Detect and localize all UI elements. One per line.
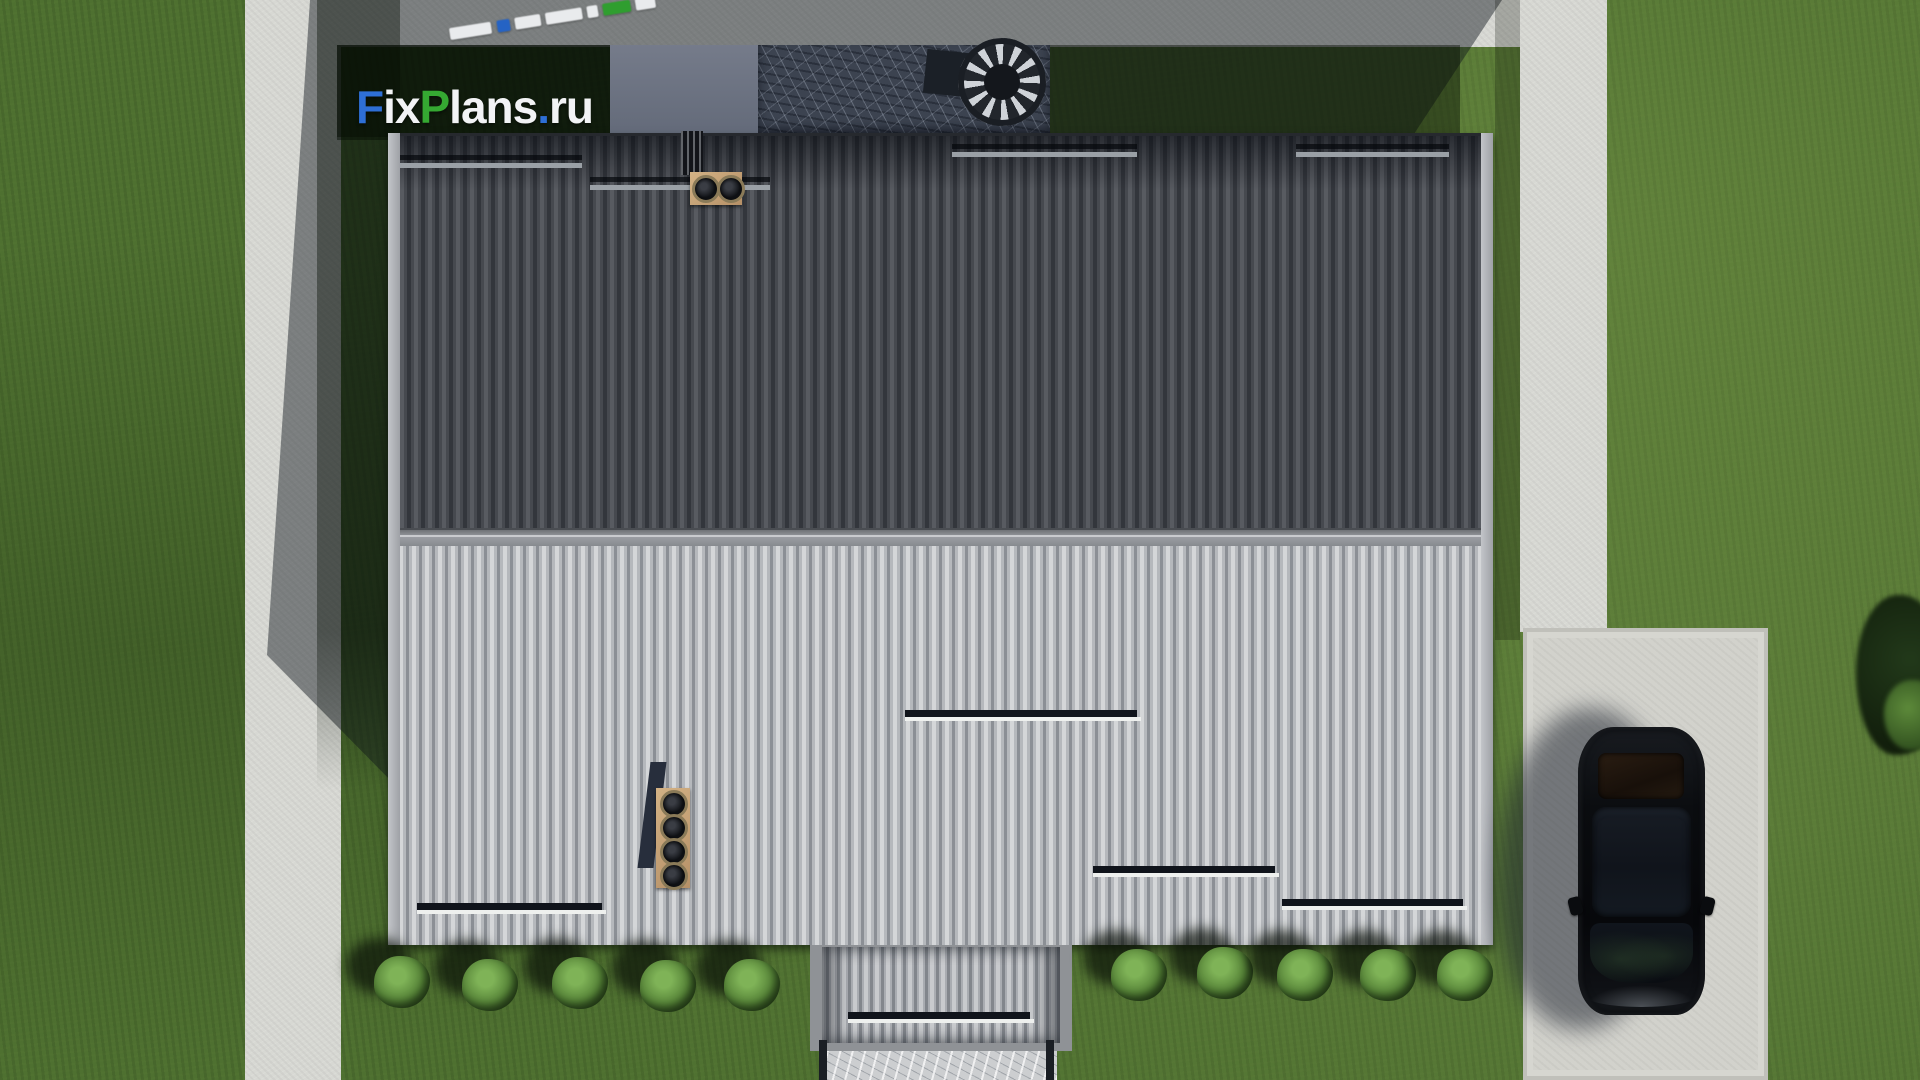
round-vent [692, 175, 720, 203]
roof-ridge-band [388, 528, 1493, 548]
watermark-letter-group: ru [549, 81, 593, 133]
spiral-staircase-core [984, 64, 1020, 100]
snow-guard-rail [905, 710, 1137, 717]
light-ribbed-roof-slope [388, 546, 1493, 945]
house-roof [388, 133, 1493, 945]
chimney-four-vents [656, 788, 690, 888]
round-vent [717, 175, 745, 203]
watermark-block-white [449, 22, 492, 40]
snow-guard-rail [848, 1012, 1030, 1019]
entrance-porch-roof [810, 945, 1072, 1051]
watermark-letter-group: ix [383, 81, 419, 133]
car-sunroof [1598, 753, 1684, 799]
chimney-two-vents [690, 172, 742, 205]
bush [724, 959, 780, 1011]
bush [1197, 947, 1253, 999]
watermark-block-white [635, 0, 657, 11]
watermark-letter-group: . [537, 81, 549, 133]
roof-fascia-right [1481, 133, 1493, 945]
car-windshield [1590, 923, 1693, 983]
snow-guard-rail [1296, 152, 1449, 157]
watermark-letter-group: F [356, 81, 383, 133]
porch-post [1046, 1040, 1054, 1080]
roof-ridge-highlight [388, 535, 1493, 537]
fixplans-watermark: FixPlans.ru [356, 80, 593, 134]
snow-guard-rail [400, 163, 582, 168]
roof-fascia-left [388, 133, 400, 945]
watermark-block-white [586, 5, 599, 19]
watermark-letter-group: lans [449, 81, 537, 133]
porch-post [819, 1040, 827, 1080]
bush [462, 959, 518, 1011]
bush [374, 956, 430, 1008]
ridge-vent-grille [681, 131, 703, 175]
watermark-block-white [514, 14, 542, 30]
dark-tile-roof-slope [388, 133, 1493, 531]
watermark-block-white [545, 7, 583, 25]
bush [1111, 949, 1167, 1001]
watermark-letter-group: P [419, 81, 449, 133]
bush [1437, 949, 1493, 1001]
black-sedan [1578, 727, 1705, 1015]
snow-guard-rail [1282, 899, 1463, 906]
bush [1277, 949, 1333, 1001]
aerial-render-scene: FixPlans.ru [0, 0, 1920, 1080]
right-concrete-path [1520, 0, 1607, 632]
snow-guard-rail [952, 152, 1137, 157]
bush [1360, 949, 1416, 1001]
entrance-stone-walkway [827, 1051, 1057, 1080]
bush [640, 960, 696, 1012]
snow-guard-rail [1093, 866, 1275, 873]
car-cabin-roof [1592, 807, 1691, 917]
porch-roof-tiles [822, 947, 1060, 1043]
watermark-block-blue [496, 19, 511, 33]
bush [552, 957, 608, 1009]
terrace-concrete-pad [610, 45, 758, 137]
right-yard-shadow-strip [1495, 0, 1520, 640]
snow-guard-rail [417, 903, 602, 910]
round-vent [660, 862, 688, 890]
watermark-block-green [602, 0, 632, 16]
car-hood-highlight [1586, 985, 1697, 1007]
